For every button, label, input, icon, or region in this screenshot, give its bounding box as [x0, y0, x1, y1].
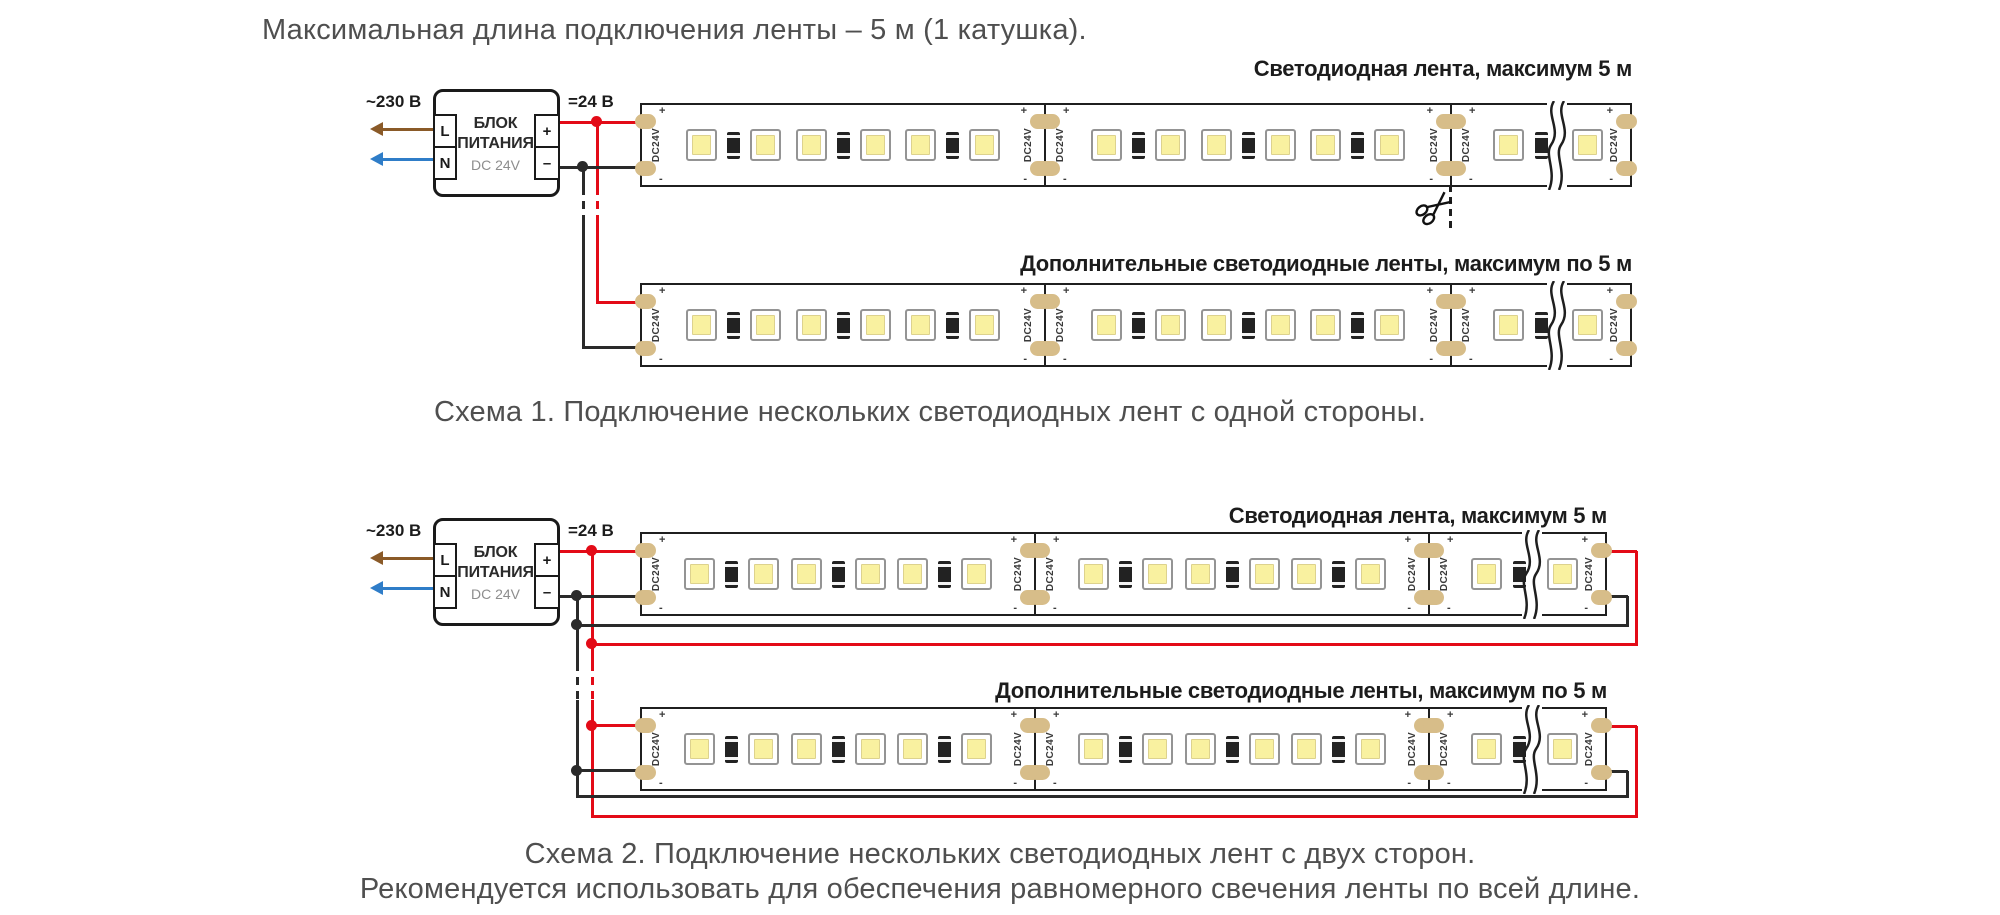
strip-terminal: +-DC24V — [1452, 105, 1482, 185]
strip-segment: +-DC24V+-DC24V — [642, 534, 1036, 614]
wire-negative-branch — [576, 769, 644, 772]
led-emitter — [1578, 315, 1597, 335]
pad-voltage-label: DC24V — [1460, 113, 1474, 177]
led-emitter — [692, 315, 711, 335]
led-emitter — [866, 315, 885, 335]
wire-negative-return-strip1 — [576, 624, 1629, 627]
led-chip — [1091, 129, 1122, 161]
strip-terminal: +-DC24V — [1575, 534, 1605, 614]
terminal-n: N — [433, 575, 457, 609]
led-emitter — [756, 315, 775, 335]
pad-voltage-label: DC24V — [1608, 293, 1622, 357]
strip-break-symbol — [1517, 530, 1547, 619]
resistor — [1332, 736, 1345, 763]
led-chip — [1142, 733, 1173, 765]
neutral-wire-arrow — [383, 587, 433, 590]
led-emitter — [1255, 564, 1274, 584]
scheme2-caption-line1: Схема 2. Подключение нескольких светодио… — [50, 838, 1950, 871]
strip-segment-partial: +-DC24V — [1430, 534, 1524, 614]
strip-terminal: +-DC24V — [1036, 534, 1066, 614]
resistor — [1132, 132, 1145, 159]
led-emitter — [1297, 564, 1316, 584]
strip-end-piece: +-DC24V — [1567, 103, 1632, 187]
led-emitter — [1084, 739, 1103, 759]
led-group — [791, 733, 886, 765]
pad-voltage-label: DC24V — [1438, 542, 1452, 606]
led-chip — [750, 129, 781, 161]
led-emitter — [797, 564, 816, 584]
led-chip — [686, 309, 717, 341]
psu-name-line2: ПИТАНИЯ — [457, 563, 533, 583]
resistor — [1351, 132, 1364, 159]
junction-dot-negative — [577, 161, 588, 172]
led-strip-main: +-DC24V+-DC24V+-DC24V+-DC24V+-DC24V +-DC… — [640, 103, 1632, 187]
led-chip — [1265, 129, 1296, 161]
strip-terminal: +-DC24V — [642, 105, 672, 185]
strip-label-main: Светодиодная лента, максимум 5 м — [1000, 56, 1632, 82]
led-group — [897, 558, 992, 590]
led-group — [1201, 129, 1296, 161]
led-group — [1078, 558, 1173, 590]
led-chip — [1572, 129, 1603, 161]
pad-voltage-label: DC24V — [1054, 113, 1068, 177]
resistor — [1132, 312, 1145, 339]
pad-voltage-label: DC24V — [650, 717, 664, 781]
wire-negative-bus — [582, 215, 585, 348]
led-chip — [1265, 309, 1296, 341]
strip-body: +-DC24V+-DC24V+-DC24V+-DC24V+-DC24V — [640, 283, 1547, 367]
resistor — [725, 561, 738, 588]
wire-positive-bus — [596, 122, 599, 187]
led-emitter — [690, 564, 709, 584]
led-strip-main: +-DC24V+-DC24V+-DC24V+-DC24V+-DC24V +-DC… — [640, 532, 1607, 616]
led-emitter — [861, 564, 880, 584]
wire-negative-return-strip2 — [576, 795, 1629, 798]
led-chip — [897, 558, 928, 590]
strip-segment: +-DC24V+-DC24V — [1036, 709, 1430, 789]
resistor — [1242, 132, 1255, 159]
junction-dot-positive — [586, 638, 597, 649]
led-emitter — [756, 135, 775, 155]
led-group — [686, 309, 781, 341]
led-chip — [796, 309, 827, 341]
wire-positive-bus — [591, 700, 594, 818]
led-chip — [1078, 558, 1109, 590]
led-chip — [1310, 129, 1341, 161]
strip-break-symbol — [1517, 705, 1547, 794]
strip-segment-partial: +-DC24V — [1452, 105, 1549, 185]
wire-positive-bus-dashed — [596, 187, 599, 215]
led-group — [1091, 129, 1186, 161]
led-chip — [860, 129, 891, 161]
led-emitter — [1255, 739, 1274, 759]
led-emitter — [754, 564, 773, 584]
psu-model: DC 24V — [471, 157, 520, 173]
led-group — [1078, 733, 1173, 765]
psu-name-line2: ПИТАНИЯ — [457, 134, 533, 154]
led-emitter — [1161, 315, 1180, 335]
mains-voltage-label: ~230 В — [366, 521, 421, 541]
strip-break-symbol — [1542, 281, 1572, 370]
led-emitter — [1380, 135, 1399, 155]
led-emitter — [1191, 739, 1210, 759]
resistor — [938, 561, 951, 588]
strip-end-piece: +-DC24V — [1542, 532, 1607, 616]
led-emitter — [1499, 135, 1518, 155]
junction-dot-positive — [591, 116, 602, 127]
led-chip — [748, 733, 779, 765]
resistor — [837, 132, 850, 159]
junction-dot-positive — [586, 545, 597, 556]
led-group — [1291, 558, 1386, 590]
terminal-l: L — [433, 114, 457, 148]
pad-voltage-label: DC24V — [1012, 717, 1026, 781]
led-chip — [1201, 309, 1232, 341]
led-chip — [1310, 309, 1341, 341]
terminal-l: L — [433, 543, 457, 577]
led-chip — [1091, 309, 1122, 341]
led-chip — [1078, 733, 1109, 765]
strip-label-main: Светодиодная лента, максимум 5 м — [975, 503, 1607, 529]
led-chip — [1249, 558, 1280, 590]
strip-body: +-DC24V+-DC24V+-DC24V+-DC24V+-DC24V — [640, 707, 1522, 791]
scheme1-caption: Схема 1. Подключение нескольких светодио… — [180, 396, 1680, 429]
psu-name-line1: БЛОК — [474, 114, 518, 134]
led-chip — [1155, 309, 1186, 341]
pad-voltage-label: DC24V — [1406, 542, 1420, 606]
mains-voltage-label: ~230 В — [366, 92, 421, 112]
strip-segment: +-DC24V+-DC24V — [1046, 285, 1452, 365]
strip-label-additional: Дополнительные светодиодные ленты, макси… — [775, 678, 1607, 704]
led-emitter — [1316, 315, 1335, 335]
led-chip — [750, 309, 781, 341]
wire-positive-feed — [560, 121, 644, 124]
led-chip — [905, 129, 936, 161]
resistor — [832, 736, 845, 763]
strip-body: +-DC24V+-DC24V+-DC24V+-DC24V+-DC24V — [640, 103, 1547, 187]
led-group — [1185, 733, 1280, 765]
led-chip — [1291, 558, 1322, 590]
resistor — [725, 736, 738, 763]
led-emitter — [1097, 135, 1116, 155]
resistor — [832, 561, 845, 588]
wire-negative-far-end — [1626, 771, 1629, 797]
led-group — [1201, 309, 1296, 341]
terminal-plus: + — [534, 114, 560, 148]
led-emitter — [1191, 564, 1210, 584]
led-chip — [684, 733, 715, 765]
terminal-n: N — [433, 146, 457, 180]
psu-text: БЛОК ПИТАНИЯ DC 24V — [459, 521, 532, 623]
resistor — [1351, 312, 1364, 339]
pad-voltage-label: DC24V — [1022, 293, 1036, 357]
led-emitter — [903, 739, 922, 759]
wire-positive-bus-dashed — [591, 663, 594, 700]
resistor — [938, 736, 951, 763]
psu-text: БЛОК ПИТАНИЯ DC 24V — [459, 92, 532, 194]
led-group — [686, 129, 781, 161]
pad-voltage-label: DC24V — [1054, 293, 1068, 357]
power-supply-unit: L N + – БЛОК ПИТАНИЯ DC 24V — [433, 518, 560, 626]
wire-negative-bus-dashed — [576, 663, 579, 700]
pad-voltage-label: DC24V — [1044, 717, 1058, 781]
terminal-plus: + — [534, 543, 560, 577]
psu-model: DC 24V — [471, 586, 520, 602]
led-emitter — [1271, 315, 1290, 335]
strip-terminal: +-DC24V — [1046, 285, 1076, 365]
led-strip-additional: +-DC24V+-DC24V+-DC24V+-DC24V+-DC24V +-DC… — [640, 283, 1632, 367]
led-chip — [748, 558, 779, 590]
strip-terminal: +-DC24V — [1036, 709, 1066, 789]
strip-terminal: +-DC24V — [1430, 709, 1460, 789]
led-chip — [860, 309, 891, 341]
led-group — [1091, 309, 1186, 341]
wire-positive-far-end — [1635, 726, 1638, 817]
junction-dot-negative — [571, 619, 582, 630]
strip-end-piece: +-DC24V — [1542, 707, 1607, 791]
led-chip — [1547, 733, 1578, 765]
scheme2-caption-line2: Рекомендуется использовать для обеспечен… — [50, 873, 1950, 906]
pad-voltage-label: DC24V — [1428, 113, 1442, 177]
strip-end-piece: +-DC24V — [1567, 283, 1632, 367]
resistor — [946, 312, 959, 339]
strip-body: +-DC24V+-DC24V+-DC24V+-DC24V+-DC24V — [640, 532, 1522, 616]
pad-voltage-label: DC24V — [1406, 717, 1420, 781]
resistor — [727, 132, 740, 159]
junction-dot-negative — [571, 765, 582, 776]
page-title: Максимальная длина подключения ленты – 5… — [262, 14, 1087, 47]
strip-terminal: +-DC24V — [642, 534, 672, 614]
pad-voltage-label: DC24V — [1608, 113, 1622, 177]
led-group — [1291, 733, 1386, 765]
led-emitter — [1297, 739, 1316, 759]
strip-terminal: +-DC24V — [1600, 105, 1630, 185]
strip-label-additional: Дополнительные светодиодные ленты, макси… — [800, 251, 1632, 277]
led-emitter — [975, 315, 994, 335]
strip-terminal: +-DC24V — [1430, 534, 1460, 614]
led-emitter — [802, 135, 821, 155]
wire-positive-far-end — [1635, 551, 1638, 645]
output-voltage-label: =24 В — [568, 521, 614, 541]
led-chip — [1493, 129, 1524, 161]
led-chip — [791, 733, 822, 765]
led-emitter — [1271, 135, 1290, 155]
led-chip — [1493, 309, 1524, 341]
led-group — [897, 733, 992, 765]
pad-voltage-label: DC24V — [1428, 293, 1442, 357]
led-chip — [1185, 558, 1216, 590]
led-emitter — [1361, 564, 1380, 584]
led-emitter — [692, 135, 711, 155]
junction-dot-positive — [586, 720, 597, 731]
strip-segment: +-DC24V+-DC24V — [642, 285, 1046, 365]
neutral-wire-arrow — [383, 158, 433, 161]
led-chip — [796, 129, 827, 161]
wire-negative-far-end — [1626, 596, 1629, 626]
psu-name-line1: БЛОК — [474, 543, 518, 563]
strip-break-symbol — [1542, 101, 1572, 190]
led-chip — [1201, 129, 1232, 161]
strip-terminal: +-DC24V — [1575, 709, 1605, 789]
led-emitter — [1207, 315, 1226, 335]
led-strip-additional: +-DC24V+-DC24V+-DC24V+-DC24V+-DC24V +-DC… — [640, 707, 1607, 791]
resistor — [837, 312, 850, 339]
wire-positive-return-strip2 — [591, 815, 1638, 818]
led-emitter — [975, 135, 994, 155]
led-chip — [1572, 309, 1603, 341]
led-group — [905, 129, 1000, 161]
led-chip — [1291, 733, 1322, 765]
led-emitter — [911, 315, 930, 335]
strip-segment: +-DC24V+-DC24V — [1046, 105, 1452, 185]
led-chip — [961, 558, 992, 590]
phase-wire-arrow — [383, 128, 433, 131]
led-group — [1310, 309, 1405, 341]
resistor — [1226, 561, 1239, 588]
wiring-diagram: Максимальная длина подключения ленты – 5… — [0, 0, 2000, 915]
strip-terminal: +-DC24V — [1600, 285, 1630, 365]
pad-voltage-label: DC24V — [1022, 113, 1036, 177]
strip-segment-partial: +-DC24V — [1452, 285, 1549, 365]
led-emitter — [1380, 315, 1399, 335]
junction-dot-negative — [571, 590, 582, 601]
led-chip — [1547, 558, 1578, 590]
pad-voltage-label: DC24V — [1583, 542, 1597, 606]
led-chip — [1471, 733, 1502, 765]
led-group — [791, 558, 886, 590]
wire-positive-feed — [560, 550, 644, 553]
wire-negative-bus-dashed — [582, 187, 585, 215]
wire-positive-bus — [596, 215, 599, 303]
strip-terminal: +-DC24V — [642, 709, 672, 789]
pad-voltage-label: DC24V — [650, 542, 664, 606]
resistor — [1332, 561, 1345, 588]
wire-negative-bus — [576, 700, 579, 798]
led-chip — [1355, 558, 1386, 590]
led-chip — [1355, 733, 1386, 765]
terminal-minus: – — [534, 575, 560, 609]
power-supply-unit: L N + – БЛОК ПИТАНИЯ DC 24V — [433, 89, 560, 197]
pad-voltage-label: DC24V — [1438, 717, 1452, 781]
strip-segment: +-DC24V+-DC24V — [642, 709, 1036, 789]
led-emitter — [1148, 564, 1167, 584]
led-group — [1310, 129, 1405, 161]
strip-segment: +-DC24V+-DC24V — [642, 105, 1046, 185]
led-group — [684, 558, 779, 590]
led-chip — [897, 733, 928, 765]
led-emitter — [1084, 564, 1103, 584]
led-chip — [1374, 129, 1405, 161]
resistor — [727, 312, 740, 339]
led-chip — [969, 309, 1000, 341]
phase-wire-arrow — [383, 557, 433, 560]
led-emitter — [1148, 739, 1167, 759]
led-chip — [855, 558, 886, 590]
led-chip — [1471, 558, 1502, 590]
led-chip — [1142, 558, 1173, 590]
led-group — [796, 309, 891, 341]
led-emitter — [1499, 315, 1518, 335]
led-emitter — [1097, 315, 1116, 335]
led-chip — [1249, 733, 1280, 765]
led-emitter — [911, 135, 930, 155]
wire-negative-feed — [560, 166, 644, 169]
pad-voltage-label: DC24V — [650, 113, 664, 177]
pad-voltage-label: DC24V — [650, 293, 664, 357]
led-chip — [961, 733, 992, 765]
led-emitter — [1553, 739, 1572, 759]
led-chip — [686, 129, 717, 161]
led-group — [905, 309, 1000, 341]
led-chip — [1374, 309, 1405, 341]
led-chip — [684, 558, 715, 590]
resistor — [1226, 736, 1239, 763]
led-emitter — [1477, 564, 1496, 584]
led-emitter — [1207, 135, 1226, 155]
led-emitter — [861, 739, 880, 759]
resistor — [1119, 561, 1132, 588]
strip-segment-partial: +-DC24V — [1430, 709, 1524, 789]
pad-voltage-label: DC24V — [1583, 717, 1597, 781]
led-emitter — [690, 739, 709, 759]
led-chip — [905, 309, 936, 341]
pad-voltage-label: DC24V — [1012, 542, 1026, 606]
resistor — [1119, 736, 1132, 763]
strip-terminal: +-DC24V — [642, 285, 672, 365]
led-emitter — [1161, 135, 1180, 155]
resistor — [1242, 312, 1255, 339]
led-group — [796, 129, 891, 161]
led-chip — [1185, 733, 1216, 765]
led-chip — [791, 558, 822, 590]
led-emitter — [1578, 135, 1597, 155]
led-chip — [969, 129, 1000, 161]
led-emitter — [903, 564, 922, 584]
led-emitter — [1553, 564, 1572, 584]
led-emitter — [797, 739, 816, 759]
wire-positive-return-strip1 — [591, 643, 1638, 646]
led-emitter — [802, 315, 821, 335]
led-emitter — [967, 564, 986, 584]
led-emitter — [1477, 739, 1496, 759]
led-chip — [1155, 129, 1186, 161]
terminal-minus: – — [534, 146, 560, 180]
led-group — [684, 733, 779, 765]
led-group — [1185, 558, 1280, 590]
led-emitter — [1361, 739, 1380, 759]
led-emitter — [1316, 135, 1335, 155]
led-chip — [855, 733, 886, 765]
led-emitter — [754, 739, 773, 759]
strip-terminal: +-DC24V — [1452, 285, 1482, 365]
led-emitter — [866, 135, 885, 155]
pad-voltage-label: DC24V — [1460, 293, 1474, 357]
pad-voltage-label: DC24V — [1044, 542, 1058, 606]
strip-terminal: +-DC24V — [1046, 105, 1076, 185]
strip-segment: +-DC24V+-DC24V — [1036, 534, 1430, 614]
resistor — [946, 132, 959, 159]
output-voltage-label: =24 В — [568, 92, 614, 112]
led-emitter — [967, 739, 986, 759]
